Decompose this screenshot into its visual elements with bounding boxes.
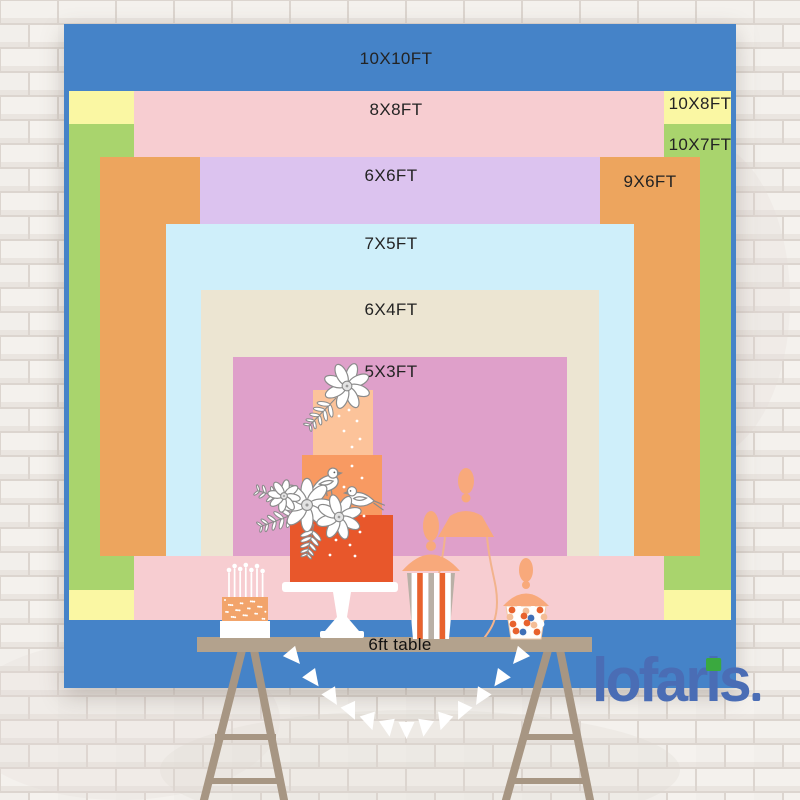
logo-registered-dot — [753, 693, 761, 701]
logo-letter-i: i — [705, 650, 719, 712]
tiered-cake-illustration — [253, 356, 398, 638]
brand-logo: lofaris — [592, 650, 760, 712]
trestle-legs — [204, 650, 590, 800]
bunting-garland — [283, 646, 530, 739]
mini-cake-icon — [220, 563, 270, 638]
logo-green-flag-icon — [706, 658, 721, 671]
table-size-label: 6ft table — [368, 635, 431, 655]
logo-text: s — [719, 646, 749, 715]
backdrop-size-chart: 10X10FT 10X8FT 10X7FT 8X8FT 9X6FT 6X6FT … — [0, 0, 800, 800]
logo-text: lofar — [592, 646, 705, 715]
candy-jar-icon — [503, 558, 549, 639]
